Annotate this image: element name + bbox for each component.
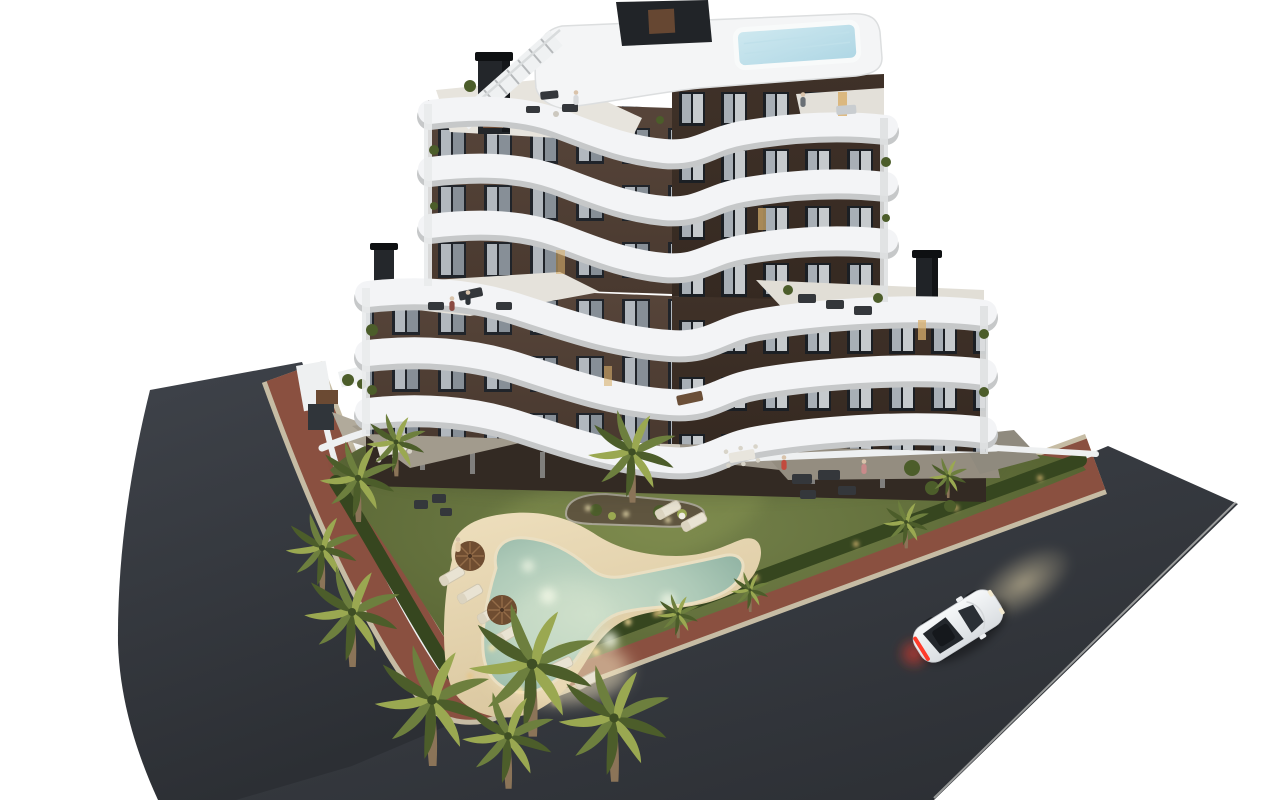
apartment-building (322, 0, 1096, 516)
balcony-side-panel (880, 118, 888, 302)
person (449, 296, 454, 311)
planter-shrub (342, 374, 354, 386)
person (465, 290, 470, 305)
person (455, 537, 460, 552)
render-canvas (0, 0, 1280, 800)
balcony-side-panel (424, 104, 432, 286)
person (800, 92, 805, 107)
grass-tuft (608, 512, 616, 520)
balcony-side-panel (362, 288, 370, 436)
person (573, 90, 578, 105)
entrance-gate (308, 404, 334, 430)
person (781, 455, 786, 470)
side-table (679, 513, 686, 520)
balcony-side-panel (980, 306, 988, 454)
architectural-render (0, 0, 1280, 800)
rooftop-pool (735, 22, 859, 68)
louvre-grille (316, 390, 338, 404)
shrub (590, 504, 602, 516)
person (861, 459, 866, 474)
roof-vent (648, 9, 675, 34)
